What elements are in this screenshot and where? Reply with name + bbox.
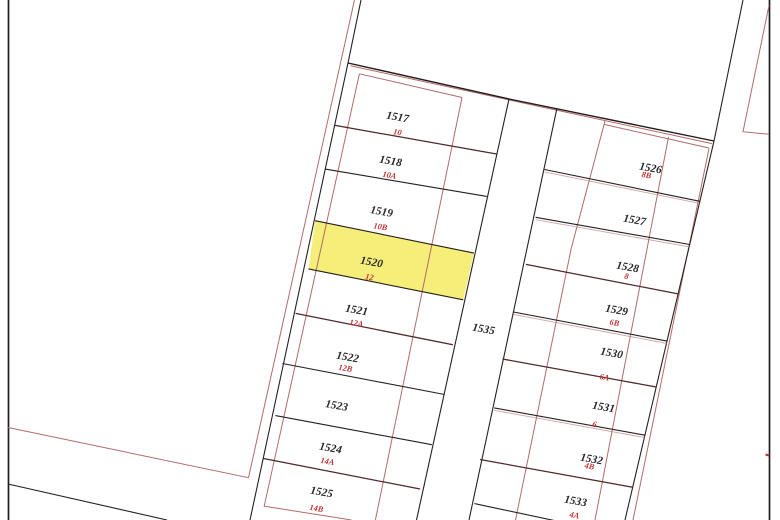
svg-text:10: 10 (393, 127, 403, 137)
svg-text:4B: 4B (583, 461, 596, 472)
svg-text:4A: 4A (568, 510, 581, 520)
svg-text:12: 12 (365, 272, 375, 282)
